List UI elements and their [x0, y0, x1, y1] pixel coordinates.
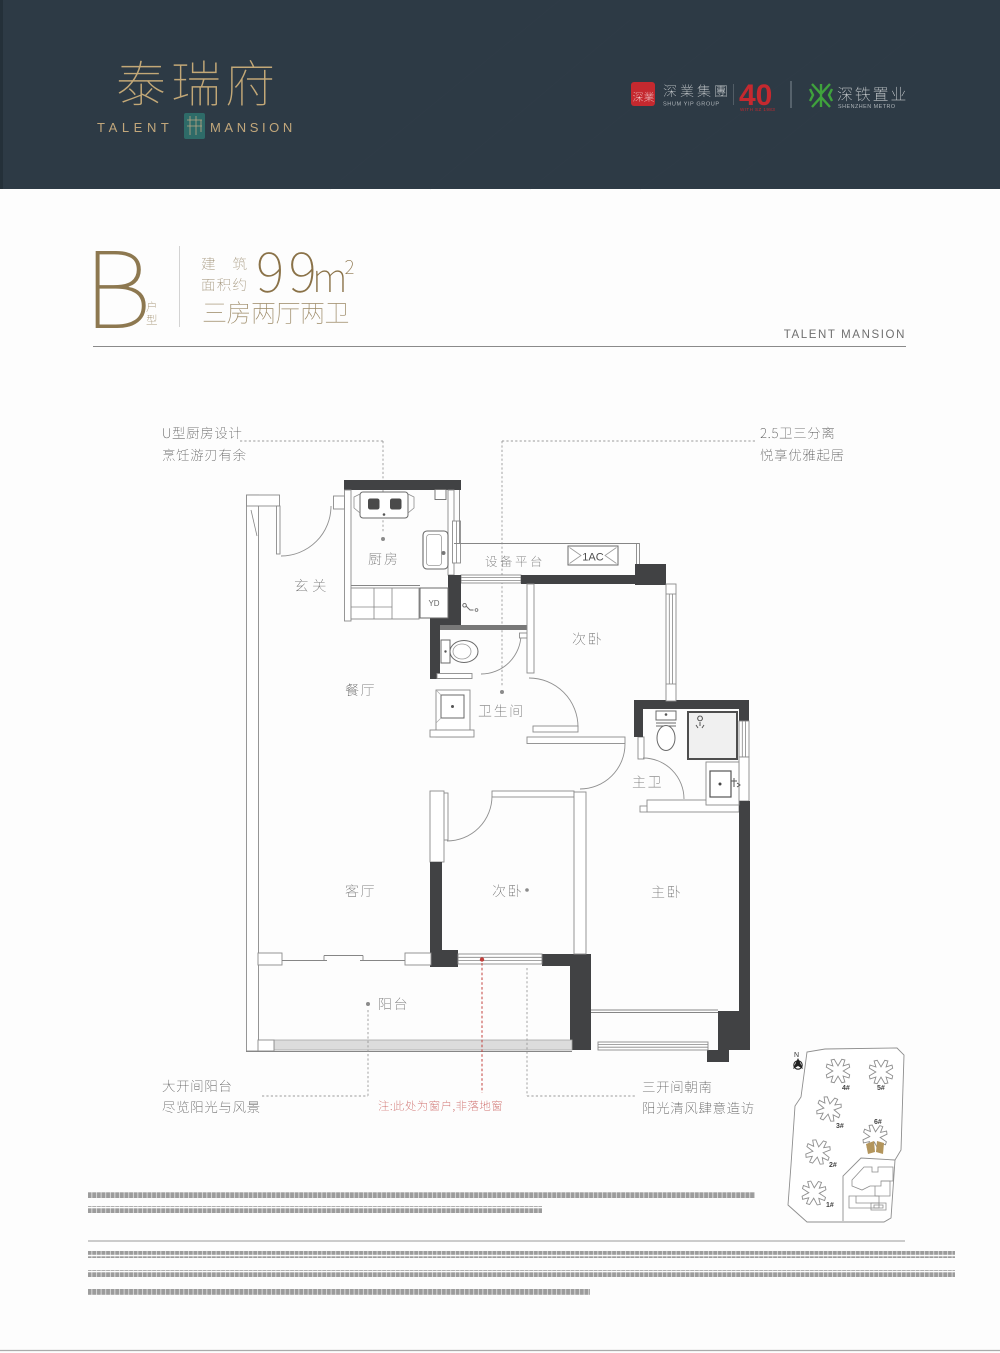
svg-text:2#: 2#	[829, 1162, 837, 1169]
svg-text:MANSION: MANSION	[210, 120, 296, 135]
svg-text:6#: 6#	[874, 1119, 882, 1126]
svg-text:3#: 3#	[836, 1123, 844, 1130]
svg-text:SHUM YIP GROUP: SHUM YIP GROUP	[663, 102, 720, 108]
svg-text:5#: 5#	[877, 1085, 885, 1092]
svg-text:YD: YD	[428, 599, 439, 608]
svg-text:1#: 1#	[826, 1202, 834, 1209]
svg-text:4#: 4#	[842, 1085, 850, 1092]
svg-text:WITH SZ 1983: WITH SZ 1983	[740, 107, 775, 112]
svg-text:N: N	[794, 1052, 799, 1059]
svg-text:1AC: 1AC	[582, 552, 603, 564]
svg-text:TALENT MANSION: TALENT MANSION	[784, 329, 906, 341]
svg-text:TALENT: TALENT	[97, 120, 173, 135]
svg-text:SHENZHEN METRO: SHENZHEN METRO	[838, 104, 896, 110]
